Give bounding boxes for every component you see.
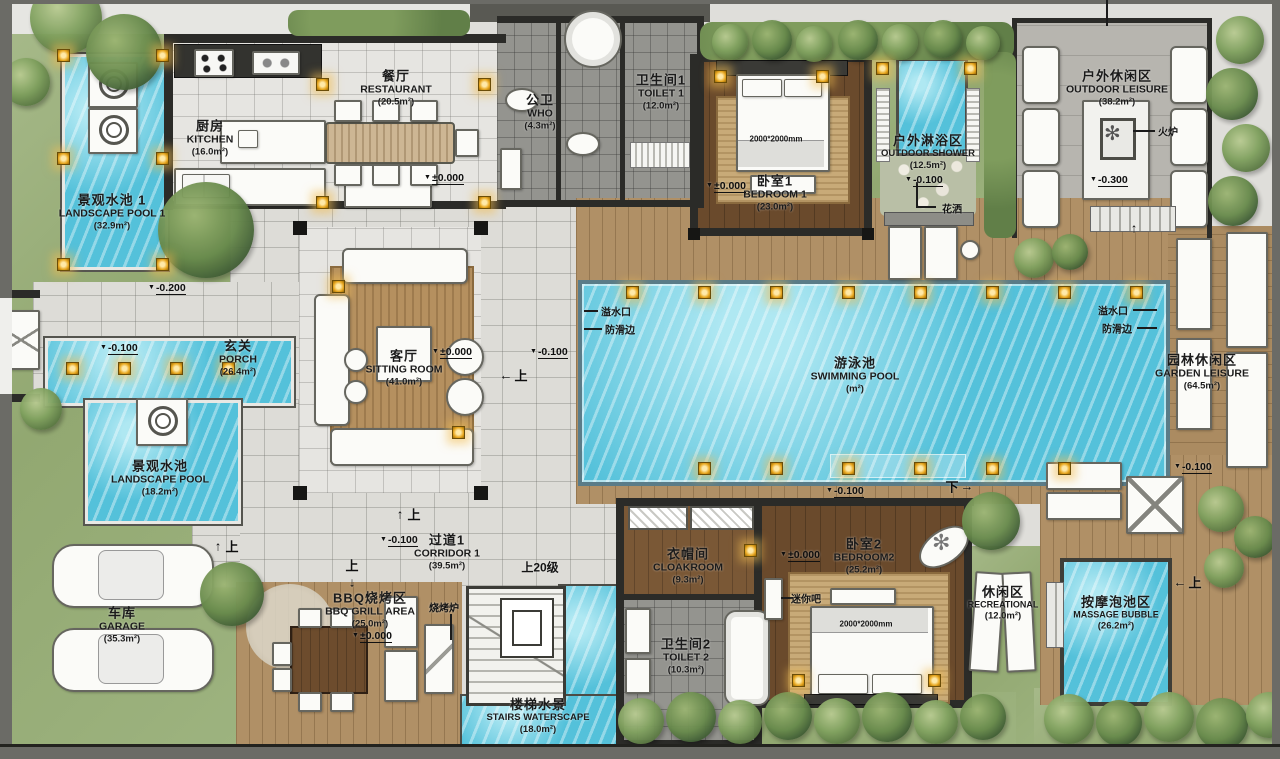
room-label-bedroom1: 卧室1 BEDROOM 1 (23.0m²)	[743, 174, 807, 213]
room-label-sitting-room: 客厅 SITTING ROOM (41.0m²)	[366, 349, 443, 388]
pool-light	[170, 362, 183, 375]
elevation-mark: ▼±0.000	[352, 630, 392, 642]
pool-light	[698, 462, 711, 475]
tree	[200, 562, 264, 626]
bed2-pillow	[872, 674, 922, 694]
tree	[1144, 692, 1194, 742]
bedroom1-east-wall	[864, 54, 872, 236]
room-label-bbq: BBQ烧烤区 BBQ GRILL AREA (25.0m²)	[325, 591, 415, 630]
dining-chair	[334, 164, 362, 186]
frame-left-entry-gap	[0, 298, 12, 394]
stairs-core	[500, 598, 554, 658]
room-label-landscape-pool: 景观水池 LANDSCAPE POOL (18.2m²)	[111, 459, 209, 498]
tree	[1216, 16, 1264, 64]
tree	[1044, 694, 1094, 744]
level-triangle-icon: ▼	[148, 284, 155, 291]
level-triangle-icon: ▼	[780, 551, 787, 558]
label-en: TOILET 2	[661, 652, 711, 664]
elevation-mark: ▼±0.000	[432, 346, 472, 358]
dir-up: 上	[345, 556, 358, 575]
leisure-north-wall	[1012, 18, 1212, 23]
lantern	[316, 196, 329, 209]
room-label-toilet2: 卫生间2 TOILET 2 (10.3m²)	[661, 637, 711, 676]
tree	[1096, 700, 1142, 746]
tree	[1014, 238, 1054, 278]
label-zh: 卫生间2	[661, 637, 711, 652]
label-zh: 景观水池 1	[59, 193, 166, 208]
lantern	[332, 280, 345, 293]
tree	[752, 20, 792, 60]
elevation-value: ±0.000	[440, 346, 472, 359]
side-table	[960, 240, 980, 260]
pool-light	[626, 286, 639, 299]
pool-light	[57, 152, 70, 165]
room-label-massage: 按摩泡池区 MASSAGE BUBBLE (26.2m²)	[1073, 594, 1159, 631]
elevation-mark: ▼-0.100	[100, 342, 138, 354]
note-overflow-left: 溢水口	[601, 304, 631, 319]
note-bed1-size: 2000*2000mm	[750, 135, 803, 144]
elevation-mark: ▼-0.100	[380, 534, 418, 546]
sofa-back	[342, 248, 468, 284]
room-label-garden-leisure: 园林休闲区 GARDEN LEISURE (64.5m²)	[1155, 353, 1249, 392]
label-zh: 按摩泡池区	[1073, 594, 1159, 609]
shower-bench	[630, 142, 690, 168]
room-label-outdoor-shower: 户外淋浴区 OUTDOOR SHOWER (12.5m²)	[881, 133, 975, 171]
label-area: (18.2m²)	[111, 486, 209, 497]
elevation-value: -0.100	[1182, 461, 1212, 474]
tree	[814, 698, 860, 744]
label-area: (39.5m²)	[414, 560, 480, 571]
tree	[158, 182, 254, 278]
dir-up: 上	[1188, 573, 1201, 592]
dir-arrow-up: ↑	[215, 539, 222, 554]
leader-shower-head	[916, 206, 936, 208]
tree	[86, 14, 162, 90]
pool-filter-ring	[99, 115, 129, 145]
cross-table	[1126, 476, 1184, 534]
label-zh: 卧室1	[743, 174, 807, 189]
label-zh: 车库	[99, 606, 145, 621]
bed1-blanket-fold	[738, 140, 824, 167]
bedroom1-column-sw	[688, 228, 700, 240]
frame-bottom	[0, 744, 1280, 759]
elevation-mark: ▼±0.000	[424, 172, 464, 184]
level-triangle-icon: ▼	[530, 348, 537, 355]
dir-down: 下	[945, 477, 958, 496]
leisure-sofa	[1022, 108, 1060, 166]
dir-up: 上	[514, 366, 527, 385]
label-zh: 景观水池	[111, 459, 209, 474]
note-steps20: 上20级	[521, 559, 558, 576]
bbq-chair	[298, 692, 322, 712]
elevation-mark: ▼±0.000	[706, 180, 746, 192]
bedroom1-south-wall	[690, 228, 872, 236]
hedge-top-restaurant	[288, 10, 470, 36]
leader-fire-stove	[1133, 130, 1155, 132]
garden-sofa	[1226, 232, 1268, 348]
bbq-chair	[272, 642, 292, 666]
tree	[764, 692, 812, 740]
south-block-north-wall	[616, 498, 974, 506]
pool-light	[66, 362, 79, 375]
massage-pool-water	[1060, 558, 1172, 706]
bbq-chair	[272, 668, 292, 692]
bedroom1-column-se	[862, 228, 874, 240]
kitchen-appliance	[252, 51, 300, 75]
label-en: SITTING ROOM	[366, 364, 443, 376]
who-vanity	[500, 148, 522, 190]
bbq-chair	[330, 692, 354, 712]
level-triangle-icon: ▼	[905, 176, 912, 183]
label-en: WHO	[524, 108, 555, 120]
label-en: BEDROOM2	[834, 552, 895, 564]
lantern	[964, 62, 977, 75]
leader-overflow-left	[584, 310, 598, 312]
label-en: GARDEN LEISURE	[1155, 368, 1249, 380]
label-en: CLOAKROOM	[653, 562, 723, 574]
elevation-value: ±0.000	[432, 172, 464, 185]
room-label-outdoor-leisure: 户外休闲区 OUTDOOR LEISURE (38.2m²)	[1066, 69, 1168, 108]
pool-light	[1058, 286, 1071, 299]
toilet2-cabinet	[625, 658, 651, 694]
level-triangle-icon: ▼	[100, 344, 107, 351]
label-area: (38.2m²)	[1066, 96, 1168, 107]
elevation-mark: ▼±0.000	[780, 549, 820, 561]
bath-south-wall	[497, 200, 704, 207]
tree	[1196, 698, 1248, 750]
label-zh: 游泳池	[811, 356, 900, 371]
label-en: BBQ GRILL AREA	[325, 606, 415, 618]
lantern	[816, 70, 829, 83]
tree	[1206, 68, 1258, 120]
label-area: (12.0m²)	[636, 100, 686, 111]
tree	[1222, 124, 1270, 172]
level-triangle-icon: ▼	[1090, 176, 1097, 183]
room-label-porch: 玄关 PORCH (26.4m²)	[219, 339, 257, 378]
toilet2-vanity	[625, 608, 651, 654]
room-label-swimming-pool: 游泳池 SWIMMING POOL (m²)	[811, 356, 900, 395]
leader-grill	[450, 614, 452, 640]
label-en: LANDSCAPE POOL	[111, 474, 209, 486]
dir-arrow-left: ←	[1174, 575, 1187, 590]
tree	[960, 694, 1006, 740]
bed1-pillow	[742, 79, 782, 97]
stove	[194, 49, 234, 77]
villa-floor-plan: ✻ ✻	[0, 0, 1280, 759]
room-label-corridor1: 过道1 CORRIDOR 1 (39.5m²)	[414, 533, 480, 572]
elevation-value: ±0.000	[714, 180, 746, 193]
note-minibar: 迷你吧	[791, 591, 821, 606]
who-divider-wall	[556, 20, 561, 202]
lantern	[478, 196, 491, 209]
label-en: MASSAGE BUBBLE	[1073, 610, 1159, 621]
label-zh: 餐厅	[360, 69, 432, 84]
note-fire-stove: 火炉	[1158, 124, 1178, 139]
label-en: BEDROOM 1	[743, 189, 807, 201]
label-area: (12.5m²)	[881, 160, 975, 171]
tree	[618, 698, 664, 744]
label-area: (25.2m²)	[834, 564, 895, 575]
label-en: OUTDOOR SHOWER	[881, 148, 975, 159]
note-bed2-size: 2000*2000mm	[840, 620, 893, 629]
pool-light	[118, 362, 131, 375]
round-bathtub	[564, 10, 622, 68]
frame-right	[1272, 0, 1280, 759]
dining-chair	[334, 100, 362, 122]
wardrobe	[628, 506, 688, 530]
level-triangle-icon: ▼	[1174, 463, 1181, 470]
bedroom1-west-wall	[690, 54, 698, 236]
label-en: KITCHEN	[187, 134, 234, 146]
dir-arrow-up: ↑	[397, 507, 404, 522]
kitchen-island	[220, 120, 326, 164]
label-area: (4.3m²)	[524, 120, 555, 131]
pool-light	[57, 258, 70, 271]
tree	[914, 700, 958, 744]
tree	[1052, 234, 1088, 270]
label-area: (18.0m²)	[486, 724, 589, 735]
fire-fan-icon: ✻	[1104, 124, 1121, 144]
pool-light	[698, 286, 711, 299]
pool-light	[914, 462, 927, 475]
dining-chair-end	[455, 129, 479, 157]
room-label-stairs-waterscape: 楼梯水景 STAIRS WATERSCAPE (18.0m²)	[486, 697, 589, 735]
label-en: LANDSCAPE POOL 1	[59, 208, 166, 220]
tree	[862, 692, 912, 742]
dir-up: 上	[407, 505, 420, 524]
leader-antislip-left	[584, 328, 602, 330]
room-label-bedroom2: 卧室2 BEDROOM2 (25.2m²)	[834, 537, 895, 576]
dir-up: 上	[225, 537, 238, 556]
massage-steps	[1046, 582, 1064, 648]
pool-light	[842, 286, 855, 299]
tree	[20, 388, 62, 430]
label-area: (25.0m²)	[325, 618, 415, 629]
leader-top-right	[1106, 0, 1108, 26]
wardrobe	[690, 506, 754, 530]
pool-light	[1130, 286, 1143, 299]
elevation-value: -0.100	[538, 346, 568, 359]
tree	[1204, 548, 1244, 588]
label-area: (32.9m²)	[59, 220, 166, 231]
label-area: (23.0m²)	[743, 201, 807, 212]
level-triangle-icon: ▼	[424, 174, 431, 181]
tree	[1234, 516, 1276, 558]
elevation-value: ±0.000	[788, 549, 820, 562]
label-zh: 客厅	[366, 349, 443, 364]
elevation-value: -0.200	[156, 282, 186, 295]
tree	[796, 26, 832, 62]
pavilion-column-sw	[293, 486, 307, 500]
tree	[1208, 176, 1258, 226]
elevation-value: ±0.000	[360, 630, 392, 643]
room-label-kitchen: 厨房 KITCHEN (16.0m²)	[187, 119, 234, 158]
dining-chair	[372, 164, 400, 186]
minibar-fixture	[764, 578, 783, 620]
elevation-mark: ▼-0.300	[1090, 174, 1128, 186]
pool-light	[914, 286, 927, 299]
label-zh: 户外休闲区	[1066, 69, 1168, 84]
label-zh: 过道1	[414, 533, 480, 548]
bbq-chair	[298, 608, 322, 628]
tree	[966, 26, 1000, 60]
label-area: (m²)	[811, 383, 900, 394]
label-zh: 园林休闲区	[1155, 353, 1249, 368]
room-label-restaurant: 餐厅 RESTAURANT (20.5m²)	[360, 69, 432, 108]
lantern	[478, 78, 491, 91]
label-zh: 休闲区	[968, 584, 1039, 599]
pool-light	[986, 286, 999, 299]
pool-light	[1058, 462, 1071, 475]
level-triangle-icon: ▼	[380, 536, 387, 543]
pool-filter-ring	[148, 406, 178, 436]
label-zh: 卫生间1	[636, 73, 686, 88]
cloak-toilet2-divider	[620, 594, 760, 600]
leisure-sofa	[1170, 46, 1208, 104]
room-label-who: 公卫 WHO (4.3m²)	[524, 93, 555, 132]
note-overflow-right: 溢水口	[1098, 303, 1128, 318]
label-en: PORCH	[219, 354, 257, 366]
label-zh: 卧室2	[834, 537, 895, 552]
label-en: CORRIDOR 1	[414, 548, 480, 560]
pool-light	[156, 152, 169, 165]
label-area: (9.3m²)	[653, 574, 723, 585]
pool-light	[770, 286, 783, 299]
label-zh: 楼梯水景	[486, 697, 589, 712]
pavilion-column-ne	[474, 221, 488, 235]
elevation-value: -0.100	[388, 534, 418, 547]
pool-light	[986, 462, 999, 475]
elevation-value: -0.100	[108, 342, 138, 355]
pool-light	[57, 49, 70, 62]
level-triangle-icon: ▼	[706, 182, 713, 189]
tree	[718, 700, 762, 744]
tree	[882, 24, 918, 60]
frame-top	[0, 0, 1280, 4]
tree	[712, 24, 748, 60]
label-en: SWIMMING POOL	[811, 371, 900, 383]
leader-overflow-right	[1133, 309, 1157, 311]
deck-lounger	[1046, 492, 1122, 520]
stool-round	[344, 348, 368, 372]
elevation-mark: ▼-0.100	[826, 485, 864, 497]
leisure-sofa	[1022, 170, 1060, 228]
room-label-toilet1: 卫生间1 TOILET 1 (12.0m²)	[636, 73, 686, 112]
pool-lounger	[924, 226, 958, 280]
pool-light	[842, 462, 855, 475]
leisure-sofa	[1022, 46, 1060, 104]
tree	[962, 492, 1020, 550]
label-area: (20.5m²)	[360, 96, 432, 107]
dining-table	[325, 122, 455, 164]
room-label-recreational: 休闲区 RECREATIONAL (12.0m²)	[968, 584, 1039, 621]
pool-light	[156, 49, 169, 62]
elevation-mark: ▼-0.100	[530, 346, 568, 358]
tree	[924, 20, 962, 58]
label-area: (41.0m²)	[366, 376, 443, 387]
fan-icon: ✻	[932, 532, 950, 554]
bed2-bench	[830, 588, 896, 605]
dir-arrow-up: ↑	[1131, 221, 1138, 236]
lantern	[876, 62, 889, 75]
lantern	[792, 674, 805, 687]
lantern	[928, 674, 941, 687]
note-antislip-right: 防滑边	[1102, 321, 1132, 336]
dir-arrow-down: ↓	[349, 575, 356, 590]
label-en: STAIRS WATERSCAPE	[486, 712, 589, 723]
bathtub	[724, 610, 770, 706]
room-label-landscape-pool1: 景观水池 1 LANDSCAPE POOL 1 (32.9m²)	[59, 193, 166, 232]
level-triangle-icon: ▼	[432, 348, 439, 355]
lantern	[714, 70, 727, 83]
dir-arrow-right: →	[961, 479, 974, 494]
tree	[838, 20, 878, 60]
pool-light	[770, 462, 783, 475]
label-area: (26.2m²)	[1073, 620, 1159, 631]
note-shower-head: 花洒	[942, 201, 962, 216]
elevation-mark: ▼-0.100	[1174, 461, 1212, 473]
leader-antislip-right	[1137, 327, 1157, 329]
label-en: TOILET 1	[636, 88, 686, 100]
pool-light	[156, 258, 169, 271]
label-area: (16.0m²)	[187, 146, 234, 157]
pavilion-column-se	[474, 486, 488, 500]
bed2-pillow	[818, 674, 868, 694]
label-zh: BBQ烧烤区	[325, 591, 415, 606]
island-sink	[238, 130, 258, 148]
label-area: (26.4m²)	[219, 366, 257, 377]
room-label-garage: 车库 GARAGE (35.3m²)	[99, 606, 145, 645]
note-antislip-left: 防滑边	[605, 322, 635, 337]
hedge-shower-east	[984, 52, 1016, 238]
elevation-value: -0.300	[1098, 174, 1128, 187]
grill-cabinet	[384, 650, 418, 702]
pavilion-column-nw	[293, 221, 307, 235]
lantern	[316, 78, 329, 91]
lounge-chair-round	[446, 378, 484, 416]
label-zh: 公卫	[524, 93, 555, 108]
stool-round	[344, 380, 368, 404]
label-en: GARAGE	[99, 621, 145, 633]
toilet-fixture	[566, 132, 600, 156]
garden-lounger	[1176, 238, 1212, 330]
label-area: (35.3m²)	[99, 633, 145, 644]
level-triangle-icon: ▼	[826, 487, 833, 494]
label-en: RESTAURANT	[360, 84, 432, 96]
elevation-value: -0.100	[913, 174, 943, 187]
level-triangle-icon: ▼	[352, 632, 359, 639]
pool-lounger	[888, 226, 922, 280]
elevation-value: -0.100	[834, 485, 864, 498]
note-grill: 烧烤炉	[429, 600, 459, 615]
label-en: RECREATIONAL	[968, 600, 1039, 611]
lantern	[452, 426, 465, 439]
label-area: (64.5m²)	[1155, 380, 1249, 391]
tree	[666, 692, 716, 742]
label-area: (10.3m²)	[661, 664, 711, 675]
label-area: (12.0m²)	[968, 610, 1039, 621]
label-zh: 衣帽间	[653, 547, 723, 562]
lantern	[744, 544, 757, 557]
room-label-cloakroom: 衣帽间 CLOAKROOM (9.3m²)	[653, 547, 723, 586]
elevation-mark: ▼-0.200	[148, 282, 186, 294]
car-roof	[98, 550, 164, 600]
label-en: OUTDOOR LEISURE	[1066, 84, 1168, 96]
label-zh: 厨房	[187, 119, 234, 134]
dir-arrow-left: ←	[500, 368, 513, 383]
label-zh: 玄关	[219, 339, 257, 354]
label-zh: 户外淋浴区	[881, 133, 975, 148]
